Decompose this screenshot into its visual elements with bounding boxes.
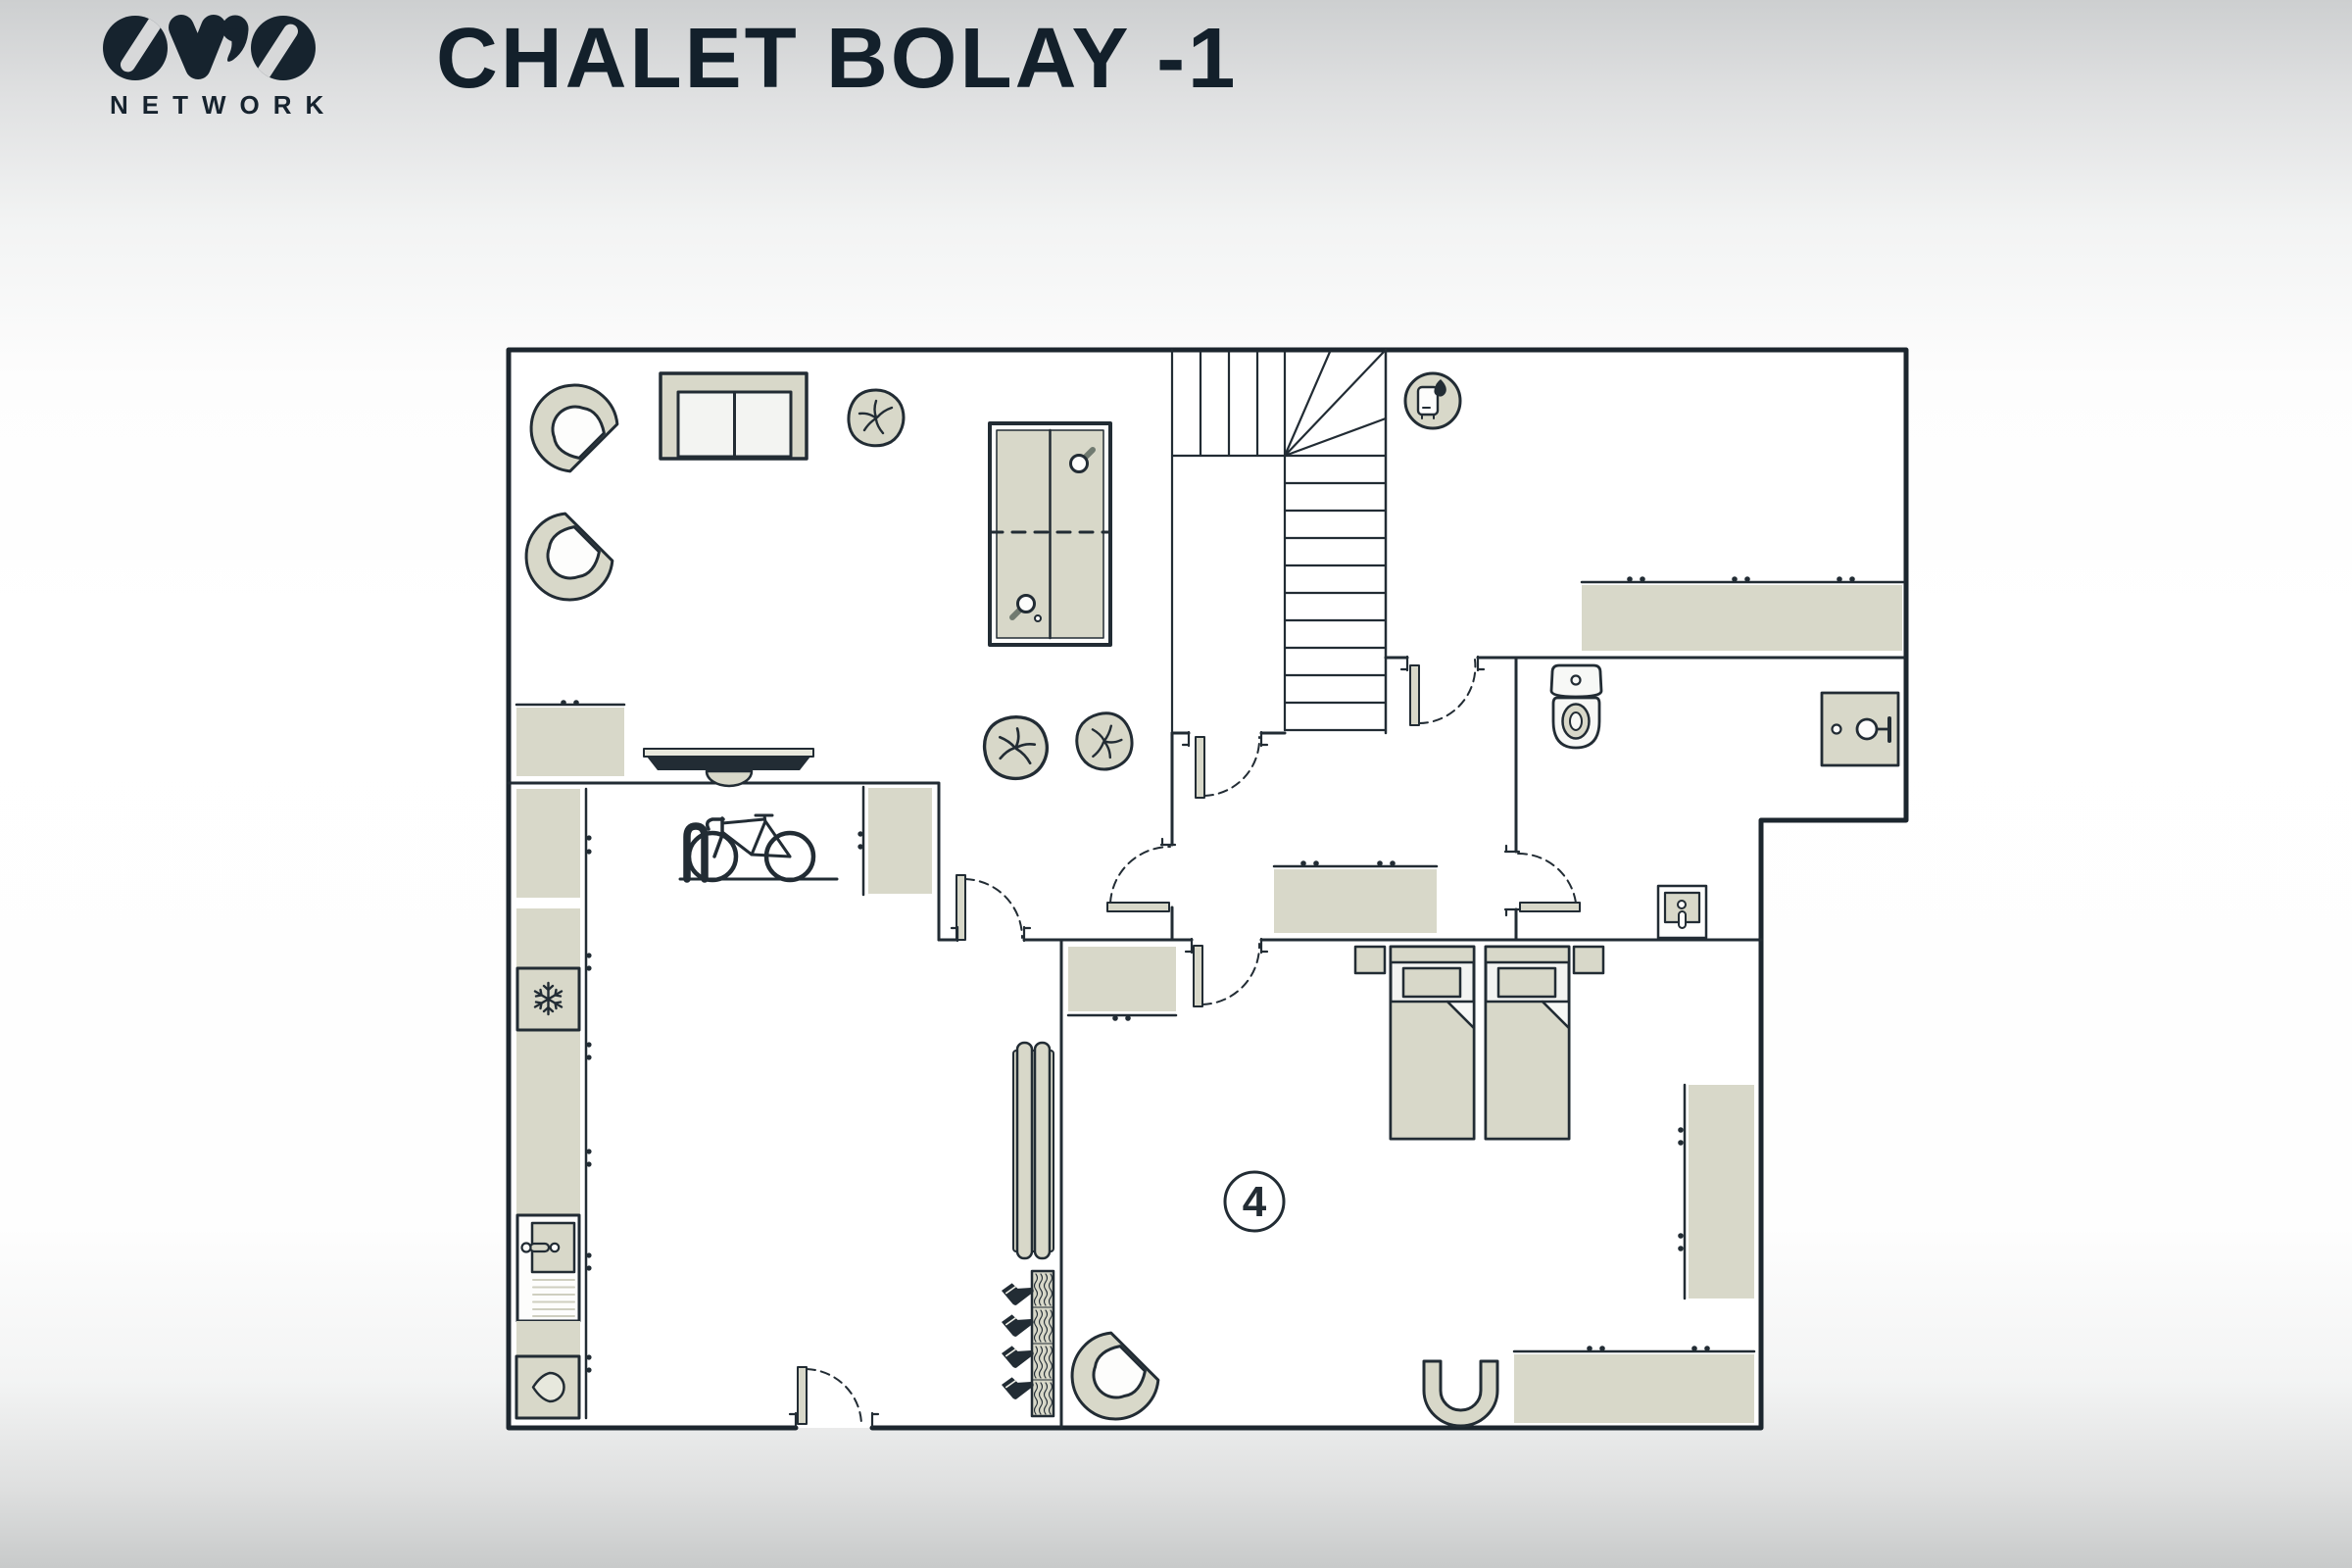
svg-text:4: 4 (1243, 1178, 1267, 1226)
